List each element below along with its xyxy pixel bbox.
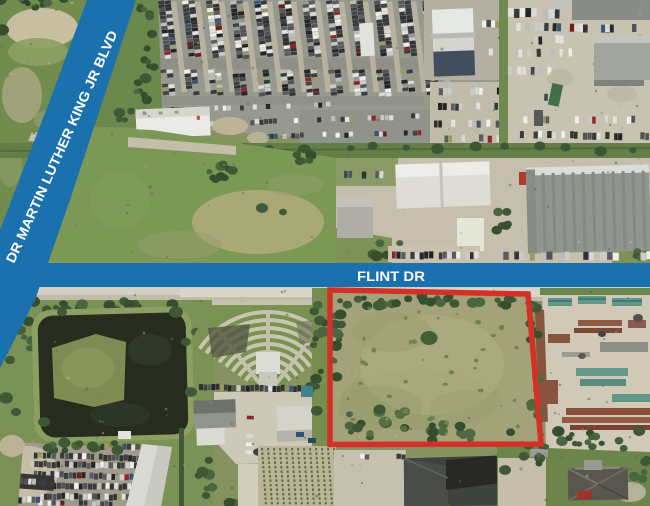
- svg-text:FLINT DR: FLINT DR: [357, 269, 425, 284]
